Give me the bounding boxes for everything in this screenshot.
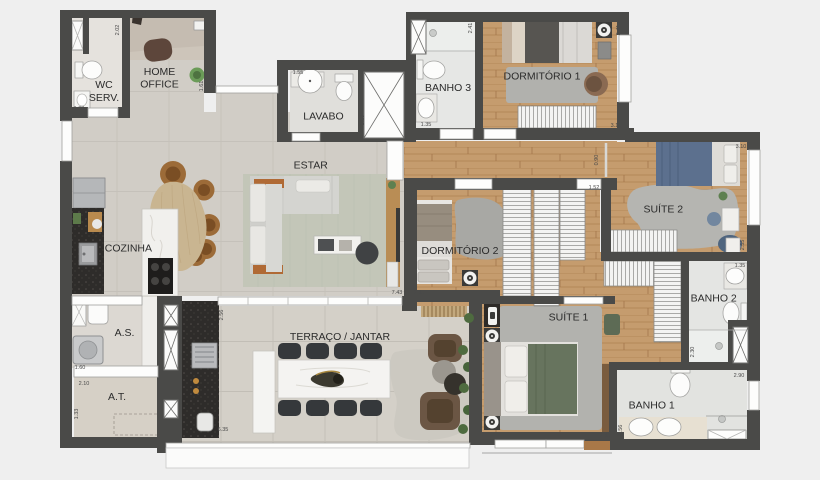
svg-text:OFFICE: OFFICE (140, 79, 179, 91)
svg-text:2.85: 2.85 (600, 433, 611, 439)
svg-text:1.35: 1.35 (735, 263, 746, 269)
svg-text:2.30: 2.30 (690, 347, 696, 358)
svg-text:2.85: 2.85 (414, 290, 425, 296)
svg-text:3.15: 3.15 (611, 123, 622, 129)
svg-text:BANHO 2: BANHO 2 (691, 293, 737, 305)
svg-text:ESTAR: ESTAR (294, 160, 329, 172)
svg-text:2.02: 2.02 (115, 25, 121, 36)
svg-text:1.55: 1.55 (293, 70, 304, 76)
svg-text:DORMITÓRIO 1: DORMITÓRIO 1 (503, 70, 580, 83)
svg-text:1.56: 1.56 (618, 425, 624, 436)
svg-text:2.41: 2.41 (468, 23, 474, 34)
svg-text:2.10: 2.10 (79, 381, 90, 387)
svg-text:2.55: 2.55 (740, 240, 746, 251)
svg-text:7.43: 7.43 (392, 290, 403, 296)
svg-text:WC: WC (95, 79, 113, 91)
svg-text:LAVABO: LAVABO (303, 111, 343, 123)
svg-text:3.10: 3.10 (736, 144, 747, 150)
svg-text:TERRAÇO / JANTAR: TERRAÇO / JANTAR (290, 331, 391, 343)
svg-text:SERV.: SERV. (89, 92, 119, 104)
svg-text:2.46: 2.46 (409, 191, 415, 202)
svg-text:1.33: 1.33 (74, 409, 80, 420)
svg-text:6.35: 6.35 (218, 427, 229, 433)
svg-text:1.29: 1.29 (360, 115, 366, 126)
svg-text:1.69: 1.69 (136, 11, 147, 17)
svg-text:COZINHA: COZINHA (105, 243, 152, 255)
svg-text:A.T.: A.T. (108, 391, 126, 403)
svg-text:0.90: 0.90 (594, 155, 600, 166)
svg-text:BANHO 1: BANHO 1 (629, 399, 675, 411)
svg-text:1.08: 1.08 (74, 106, 85, 112)
svg-text:SUÍTE 1: SUÍTE 1 (549, 311, 589, 324)
svg-text:2.41: 2.41 (616, 25, 622, 36)
svg-text:1.60: 1.60 (75, 365, 86, 371)
svg-text:BANHO 3: BANHO 3 (425, 82, 471, 94)
svg-text:2.90: 2.90 (734, 373, 745, 379)
svg-text:HOME: HOME (144, 66, 176, 78)
svg-text:DORMITÓRIO 2: DORMITÓRIO 2 (421, 244, 498, 257)
svg-text:2.56: 2.56 (219, 310, 225, 321)
svg-text:1.61: 1.61 (199, 81, 205, 92)
svg-text:1.35: 1.35 (421, 122, 432, 128)
svg-text:A.S.: A.S. (115, 327, 135, 339)
svg-text:1.52: 1.52 (589, 185, 600, 191)
svg-text:SUÍTE 2: SUÍTE 2 (643, 203, 683, 216)
